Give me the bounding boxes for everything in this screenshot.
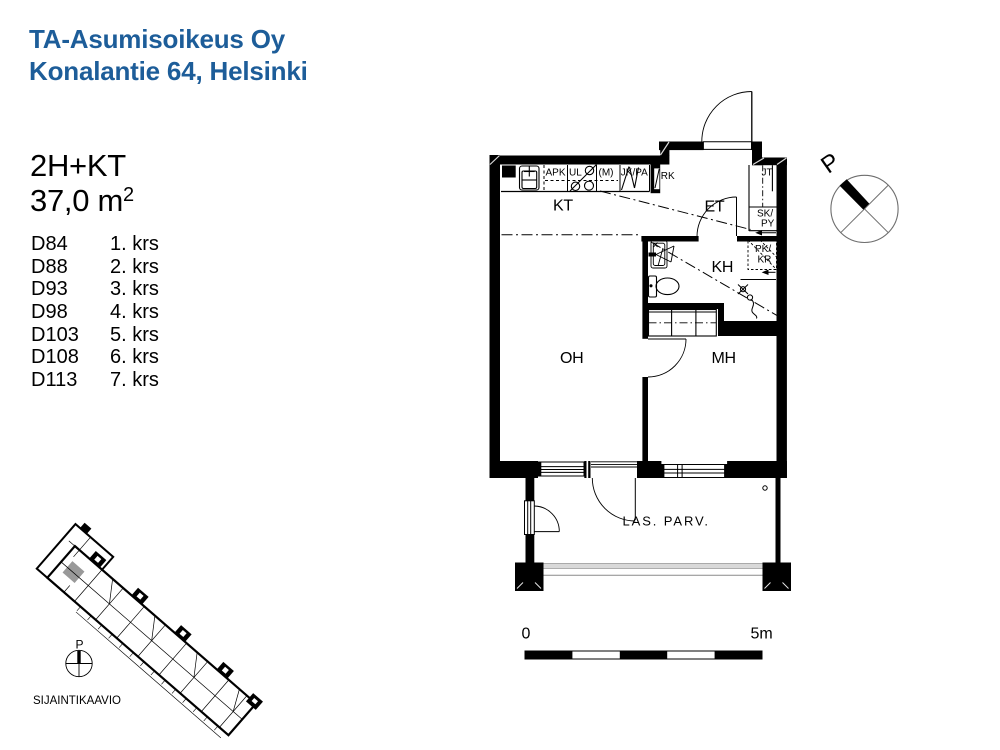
- svg-text:JT: JT: [762, 168, 773, 179]
- svg-text:PK/: PK/: [755, 244, 771, 255]
- svg-text:(M): (M): [599, 168, 614, 179]
- svg-text:ET: ET: [705, 199, 725, 216]
- svg-text:KT: KT: [553, 198, 573, 215]
- svg-text:KH: KH: [712, 259, 734, 276]
- svg-text:OH: OH: [560, 350, 583, 367]
- svg-text:JK/PA: JK/PA: [621, 168, 648, 179]
- svg-text:P: P: [816, 148, 845, 179]
- svg-text:P: P: [76, 638, 84, 652]
- svg-text:MH: MH: [712, 350, 736, 367]
- svg-text:5m: 5m: [751, 626, 773, 643]
- svg-text:0: 0: [522, 626, 531, 643]
- svg-text:KR: KR: [758, 255, 772, 266]
- svg-text:LAS. PARV.: LAS. PARV.: [623, 514, 710, 529]
- svg-text:SIJAINTIKAAVIO: SIJAINTIKAAVIO: [33, 695, 121, 707]
- svg-text:RK: RK: [661, 171, 675, 182]
- svg-text:PY: PY: [761, 219, 775, 230]
- svg-text:APK: APK: [546, 168, 566, 179]
- svg-text:UL: UL: [569, 168, 582, 179]
